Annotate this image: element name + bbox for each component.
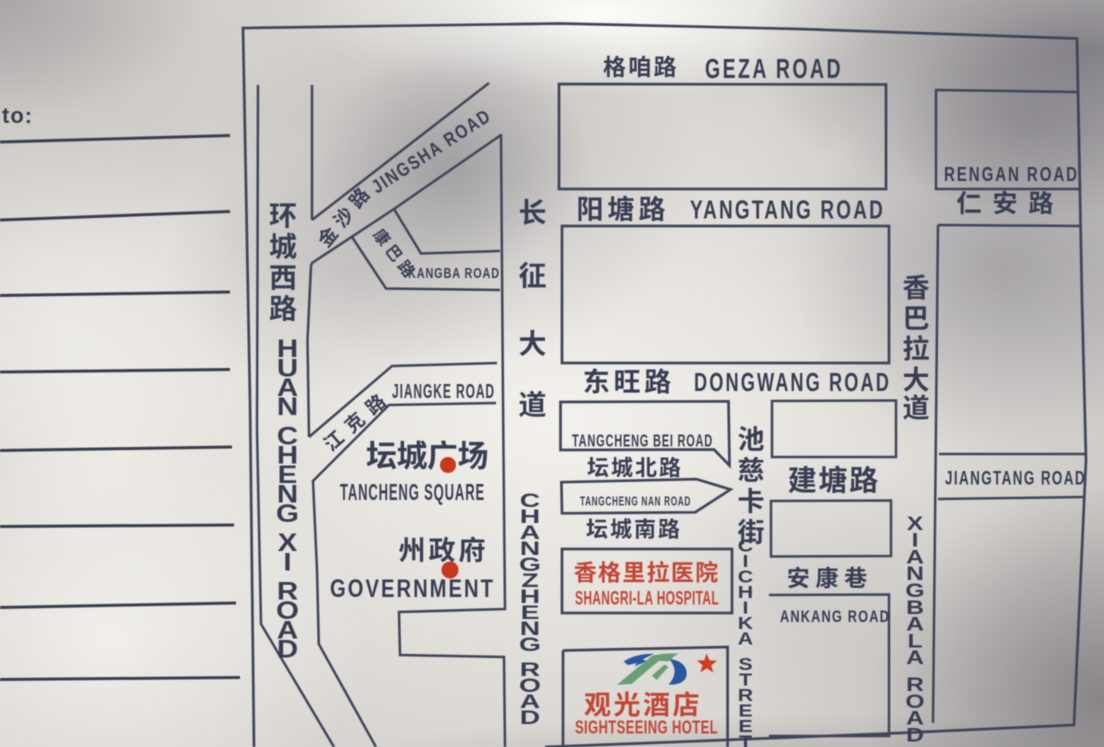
svg-text:DONGWANG ROAD: DONGWANG ROAD [694, 367, 891, 397]
svg-text:T: T [739, 732, 752, 747]
svg-text:GOVERNMENT: GOVERNMENT [330, 575, 495, 603]
svg-text:SHANGRI-LA HOSPITAL: SHANGRI-LA HOSPITAL [575, 589, 719, 610]
svg-text:RENGAN ROAD: RENGAN ROAD [944, 164, 1079, 186]
svg-text:JIANGKE ROAD: JIANGKE ROAD [392, 381, 495, 403]
svg-text:G: G [276, 499, 299, 527]
svg-text:ANKANG ROAD: ANKANG ROAD [780, 608, 890, 626]
svg-text:G: G [519, 634, 541, 656]
svg-text:D: D [277, 635, 298, 663]
svg-text:GEZA ROAD: GEZA ROAD [705, 53, 843, 84]
svg-text:KANGBA ROAD: KANGBA ROAD [408, 266, 500, 282]
svg-text:TANGCHENG BEI ROAD: TANGCHENG BEI ROAD [572, 431, 713, 451]
svg-text:D: D [520, 707, 540, 729]
svg-text:D: D [906, 724, 924, 746]
svg-text:TANCHENG SQUARE: TANCHENG SQUARE [340, 479, 485, 505]
svg-text:JIANGTANG ROAD: JIANGTANG ROAD [945, 468, 1086, 490]
svg-text:A: A [906, 647, 924, 669]
svg-text:TANGCHENG NAN ROAD: TANGCHENG NAN ROAD [580, 494, 691, 509]
svg-text:N: N [277, 392, 298, 420]
svg-text:to:: to: [2, 103, 33, 128]
svg-text:SIGHTSEEING HOTEL: SIGHTSEEING HOTEL [575, 718, 718, 738]
svg-text:I: I [283, 547, 291, 575]
svg-text:YANGTANG ROAD: YANGTANG ROAD [690, 195, 885, 225]
svg-text:A: A [738, 629, 753, 649]
